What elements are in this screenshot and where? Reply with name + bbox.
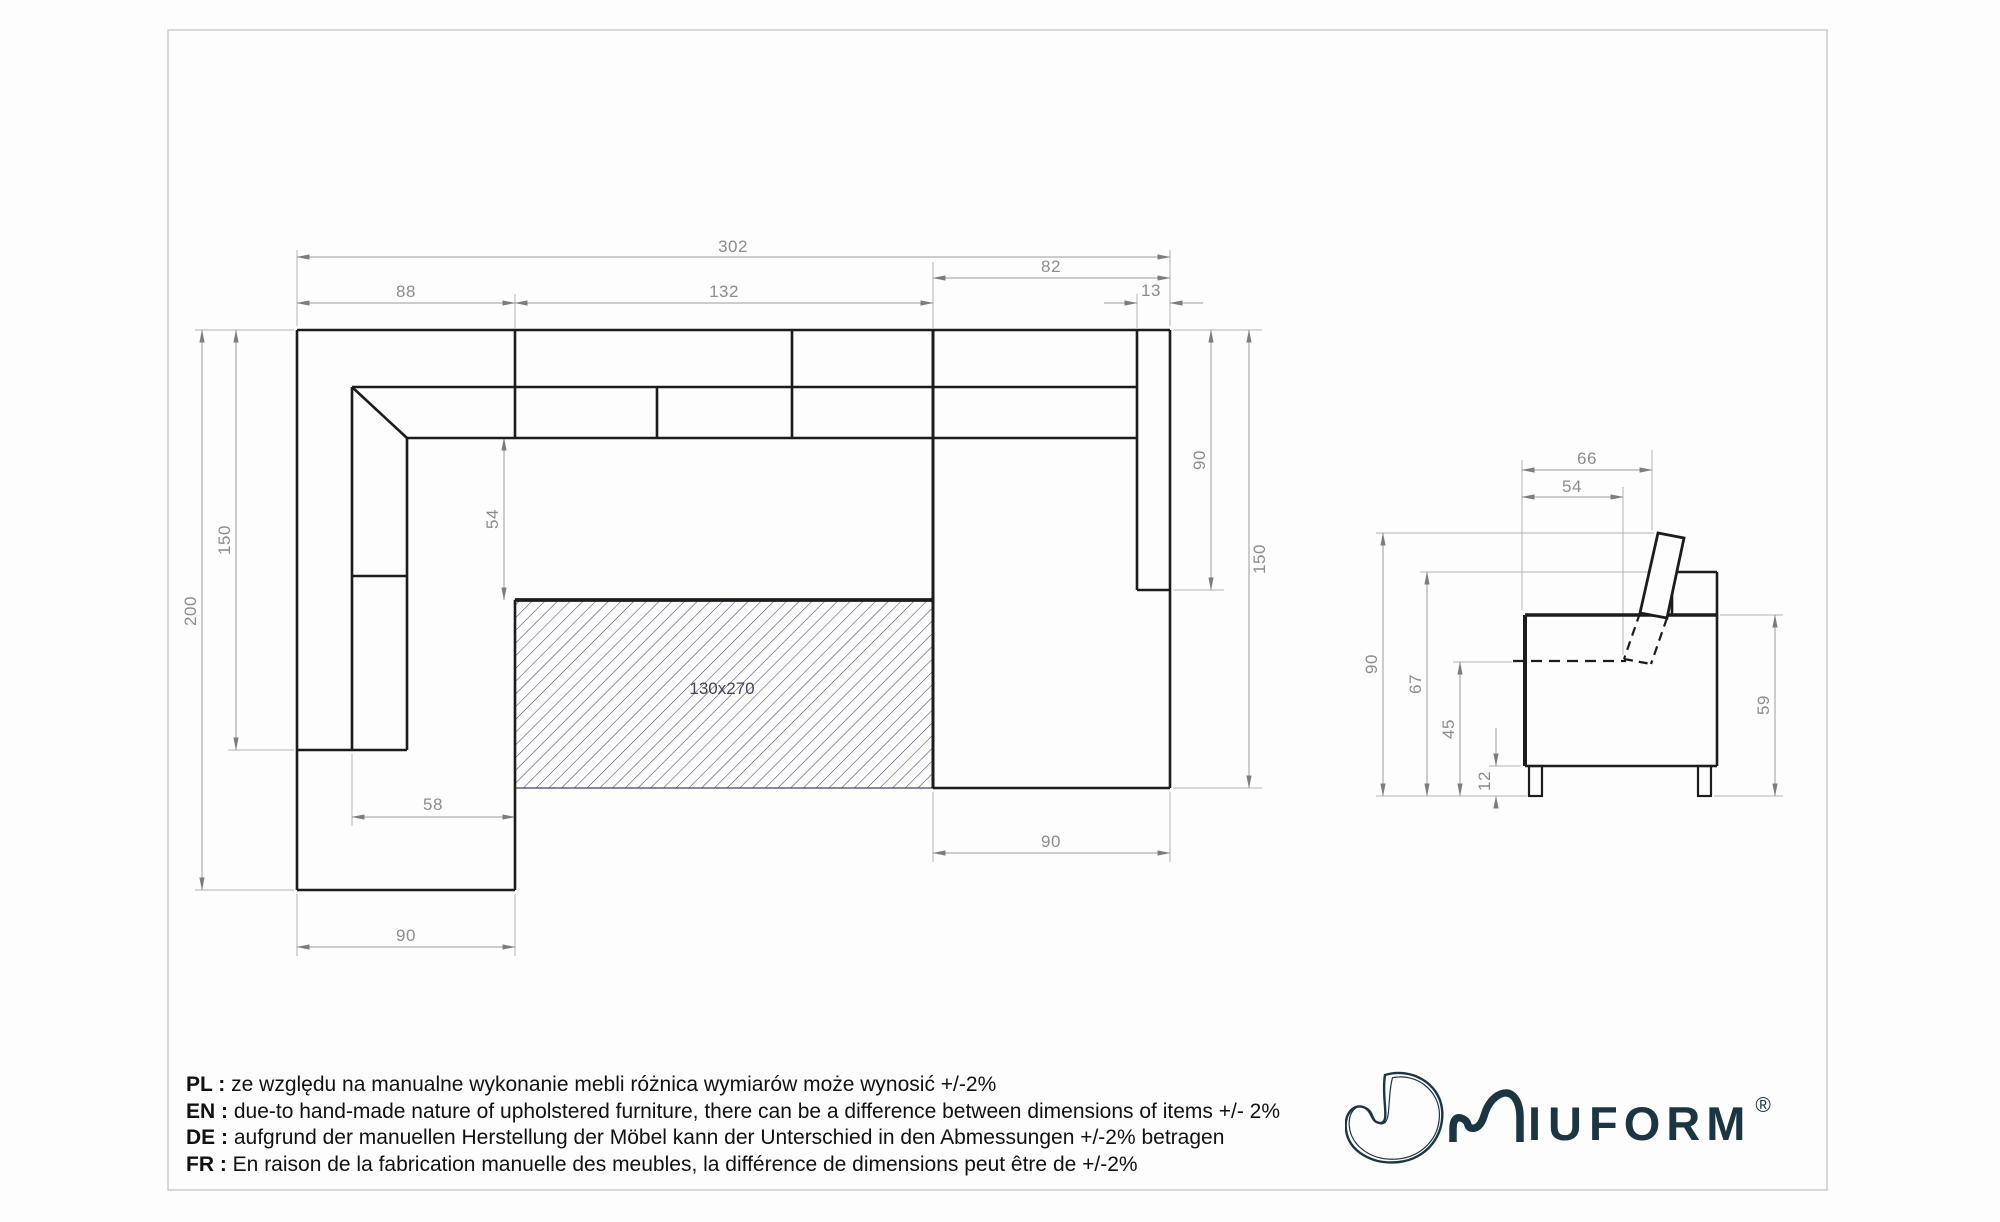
headrest-flap xyxy=(1640,533,1684,618)
dim-left-section: 88 xyxy=(396,282,416,302)
logo-bean-icon xyxy=(1346,1073,1443,1164)
note-fr: FR : En raison de la fabrication manuell… xyxy=(186,1152,1280,1179)
dim-middle-section: 132 xyxy=(709,282,739,302)
dim-left-chaise-width: 90 xyxy=(396,926,416,946)
dim-total-width: 302 xyxy=(718,237,748,257)
dim-left-total-height: 200 xyxy=(181,596,201,626)
logo-m-wave-icon xyxy=(1453,1093,1520,1142)
dim-right-side-height: 150 xyxy=(1250,544,1270,574)
note-fr-label: FR : xyxy=(186,1153,227,1176)
logo-letters-iu: IU xyxy=(1528,1096,1589,1151)
note-pl-label: PL : xyxy=(186,1073,225,1096)
tolerance-notes: PL : ze względu na manualne wykonanie me… xyxy=(186,1072,1280,1178)
dimension-lines xyxy=(202,257,1775,947)
dim-seat-depth: 54 xyxy=(483,509,503,529)
dim-left-bed-offset: 58 xyxy=(423,795,443,815)
dimension-sheet: 302 88 132 82 13 200 150 54 58 90 130x27… xyxy=(0,0,2000,1222)
note-de-text: aufgrund der manuellen Herstellung der M… xyxy=(234,1126,1225,1149)
note-fr-text: En raison de la fabrication manuelle des… xyxy=(233,1153,1138,1176)
dim-right-section: 82 xyxy=(1041,257,1061,277)
note-en: EN : due-to hand-made nature of upholste… xyxy=(186,1099,1280,1126)
dim-side-seat-height: 45 xyxy=(1439,719,1459,739)
dim-side-back-height: 67 xyxy=(1406,674,1426,694)
dim-side-leg-height: 12 xyxy=(1475,771,1495,791)
note-pl: PL : ze względu na manualne wykonanie me… xyxy=(186,1072,1280,1099)
bed-size-label: 130x270 xyxy=(689,679,754,699)
extension-lines xyxy=(195,250,1783,956)
note-de: DE : aufgrund der manuellen Herstellung … xyxy=(186,1125,1280,1152)
note-en-text: due-to hand-made nature of upholstered f… xyxy=(234,1100,1280,1123)
dim-right-chaise-width: 90 xyxy=(1041,832,1061,852)
technical-drawing xyxy=(0,0,2000,1222)
note-pl-text: ze względu na manualne wykonanie mebli r… xyxy=(231,1073,996,1096)
dim-side-seat-depth: 54 xyxy=(1562,477,1582,497)
dim-right-armrest-width: 13 xyxy=(1141,281,1161,301)
note-en-label: EN : xyxy=(186,1100,228,1123)
registered-trademark-icon: ® xyxy=(1755,1094,1770,1118)
note-de-label: DE : xyxy=(186,1126,228,1149)
logo-letters-form: FORM xyxy=(1589,1096,1751,1151)
dim-left-inner-height: 150 xyxy=(215,525,235,555)
logo-wordmark: IU FORM ® xyxy=(1528,1096,1771,1151)
miuform-logo: IU FORM ® xyxy=(1345,1068,1815,1168)
dim-side-total-depth: 66 xyxy=(1577,449,1597,469)
dim-right-armrest-length: 90 xyxy=(1190,450,1210,470)
dim-side-arm-height: 59 xyxy=(1754,695,1774,715)
dim-side-total-height: 90 xyxy=(1362,654,1382,674)
page-border xyxy=(168,30,1827,1190)
